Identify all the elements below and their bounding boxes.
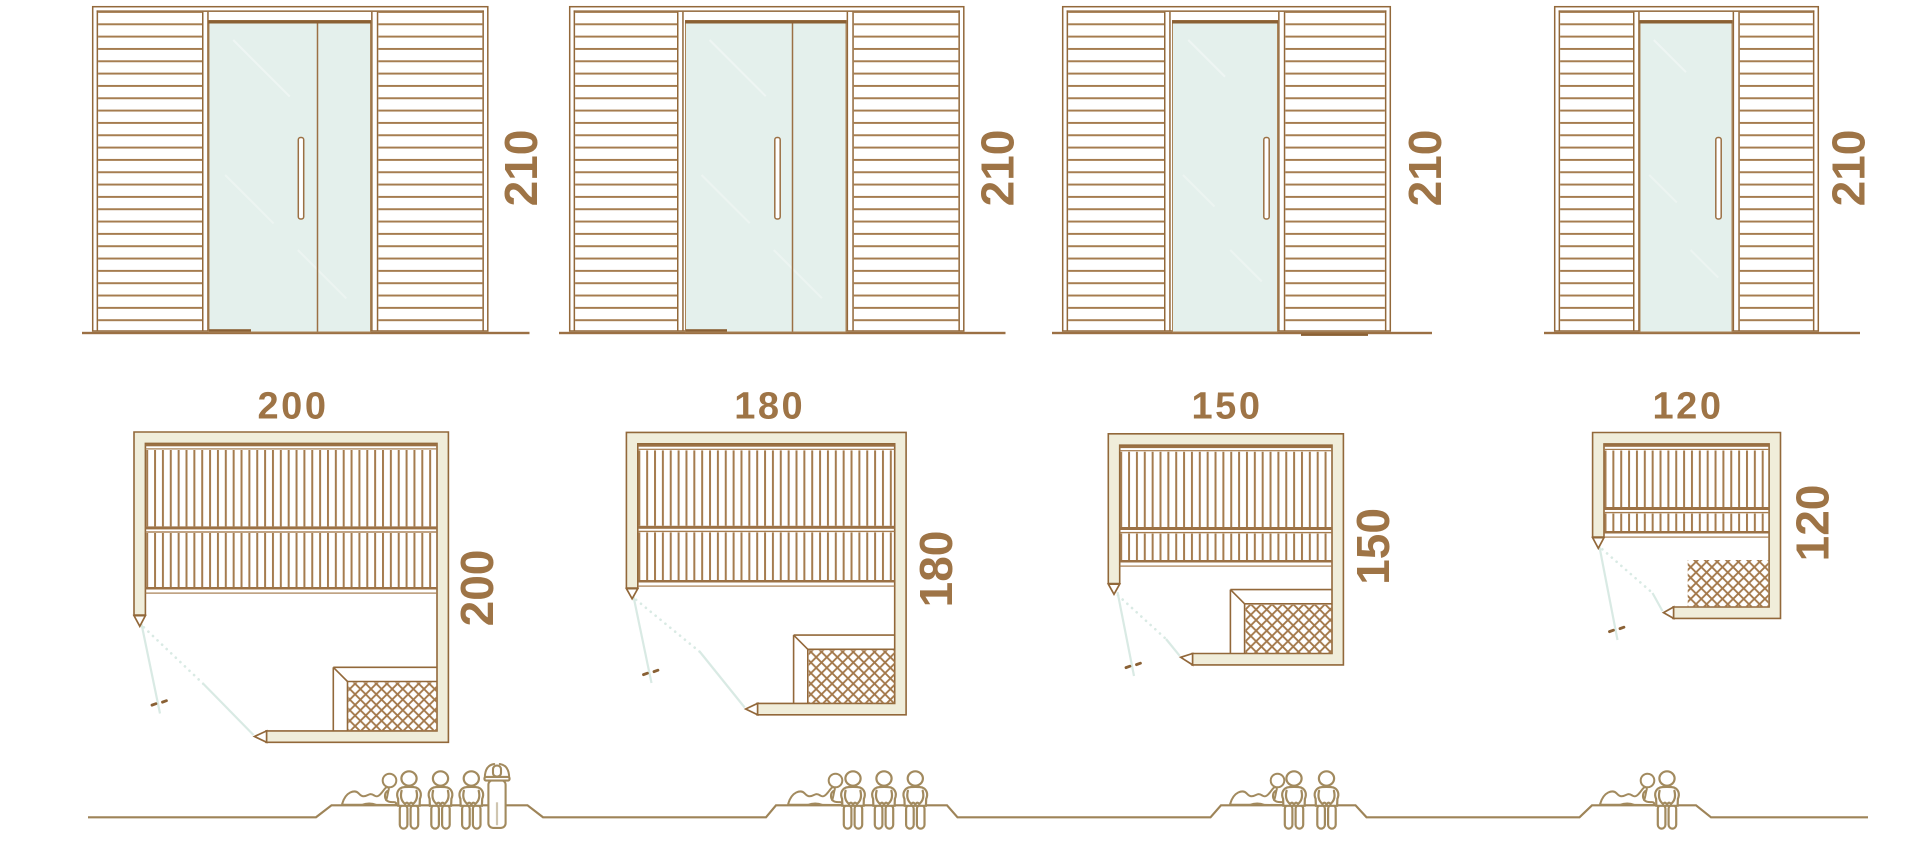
svg-text:210: 210 [1823, 130, 1875, 207]
svg-text:120: 120 [1653, 386, 1724, 428]
svg-text:210: 210 [495, 130, 547, 207]
svg-text:210: 210 [972, 130, 1024, 207]
svg-text:180: 180 [734, 386, 805, 428]
svg-text:150: 150 [1192, 386, 1263, 428]
svg-text:150: 150 [1347, 508, 1399, 585]
svg-text:120: 120 [1786, 485, 1838, 562]
svg-text:200: 200 [451, 550, 503, 627]
svg-text:210: 210 [1399, 130, 1451, 207]
svg-text:200: 200 [258, 386, 329, 428]
svg-text:180: 180 [910, 531, 962, 608]
